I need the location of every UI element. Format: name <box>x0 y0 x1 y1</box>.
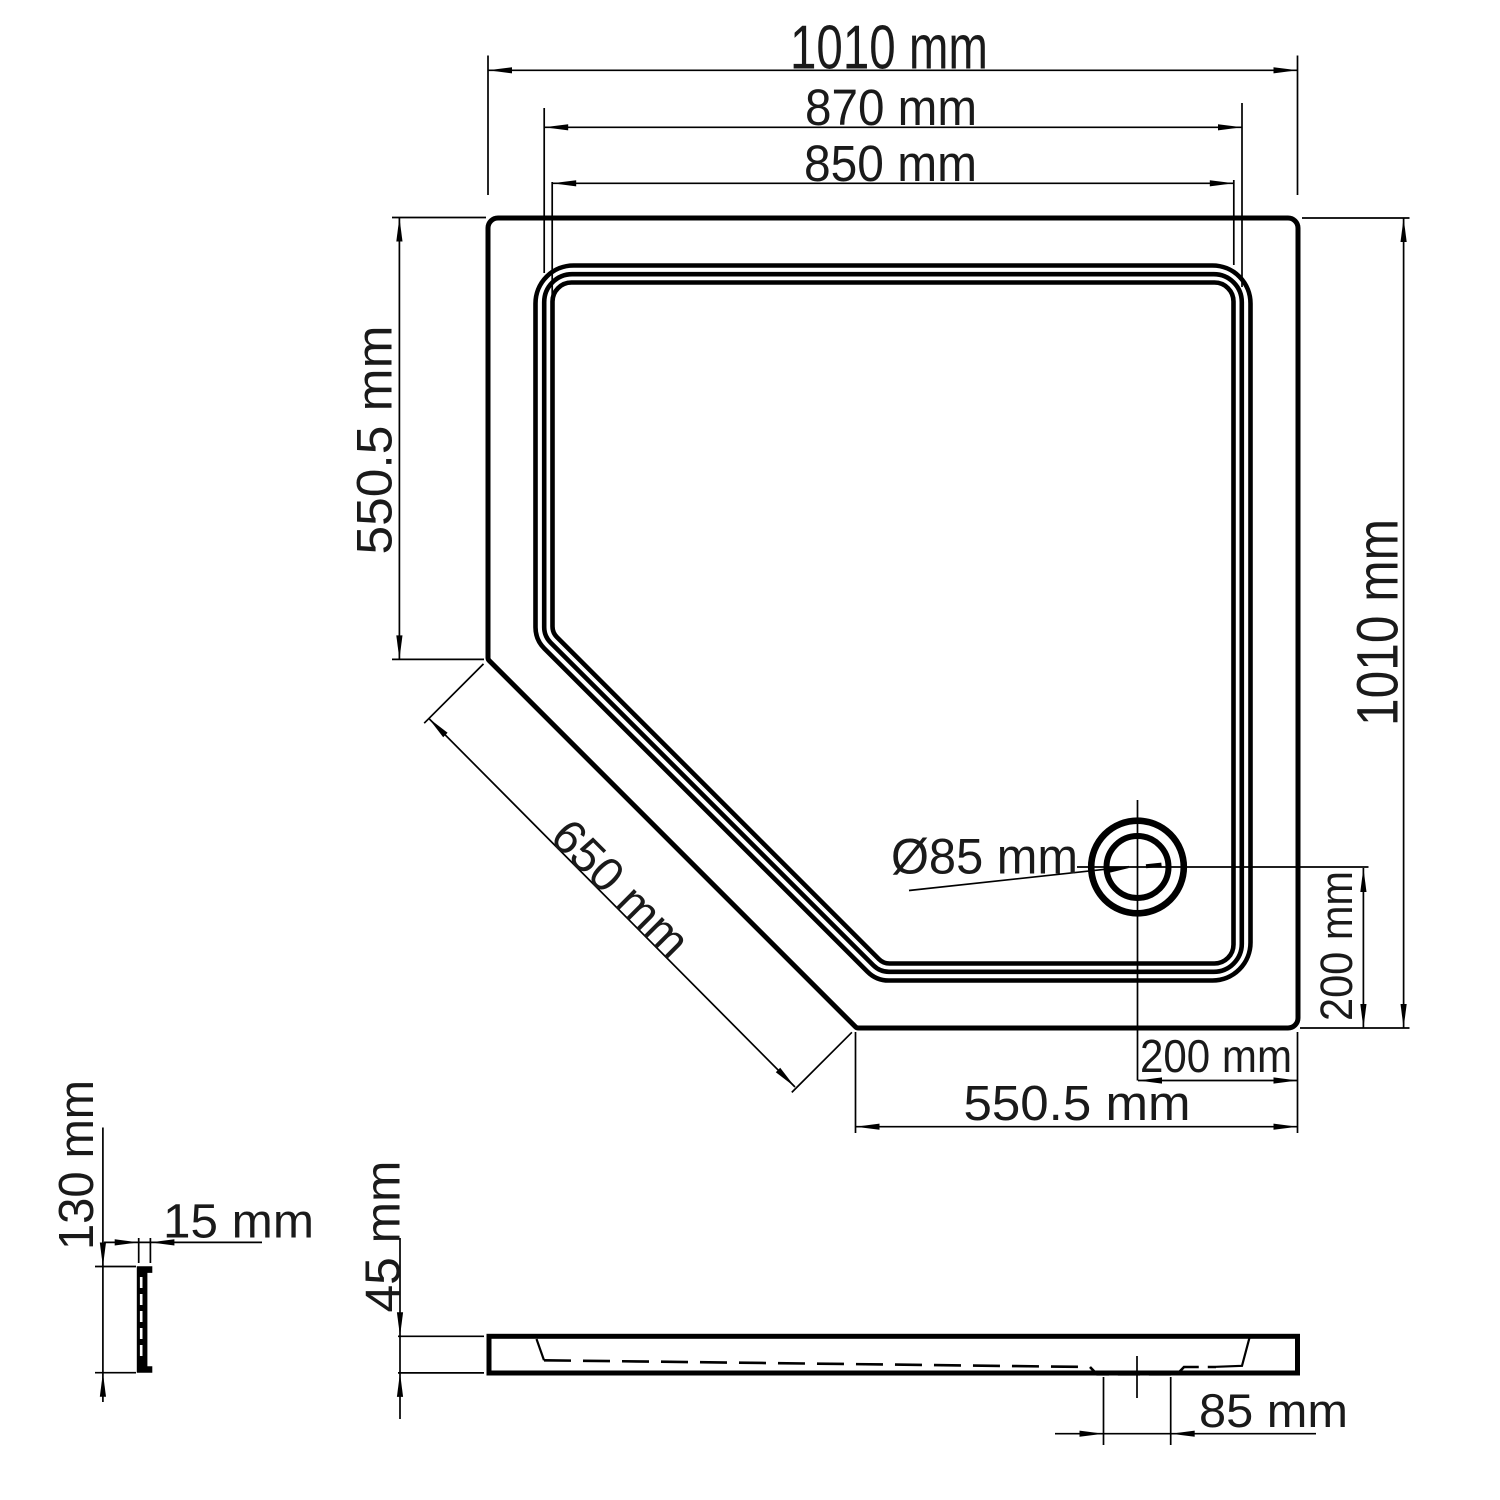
svg-text:45 mm: 45 mm <box>357 1161 411 1313</box>
svg-text:1010 mm: 1010 mm <box>1346 519 1411 726</box>
svg-text:200 mm: 200 mm <box>1311 871 1362 1021</box>
svg-text:Ø85 mm: Ø85 mm <box>891 829 1078 885</box>
svg-text:15 mm: 15 mm <box>163 1196 314 1249</box>
svg-text:870 mm: 870 mm <box>805 79 977 136</box>
svg-text:85 mm: 85 mm <box>1199 1384 1348 1437</box>
svg-text:200 mm: 200 mm <box>1140 1030 1292 1082</box>
svg-text:130 mm: 130 mm <box>50 1080 104 1250</box>
svg-text:850 mm: 850 mm <box>804 135 977 192</box>
svg-text:550.5 mm: 550.5 mm <box>346 326 402 555</box>
svg-text:1010 mm: 1010 mm <box>790 14 988 83</box>
svg-text:550.5 mm: 550.5 mm <box>964 1077 1191 1131</box>
